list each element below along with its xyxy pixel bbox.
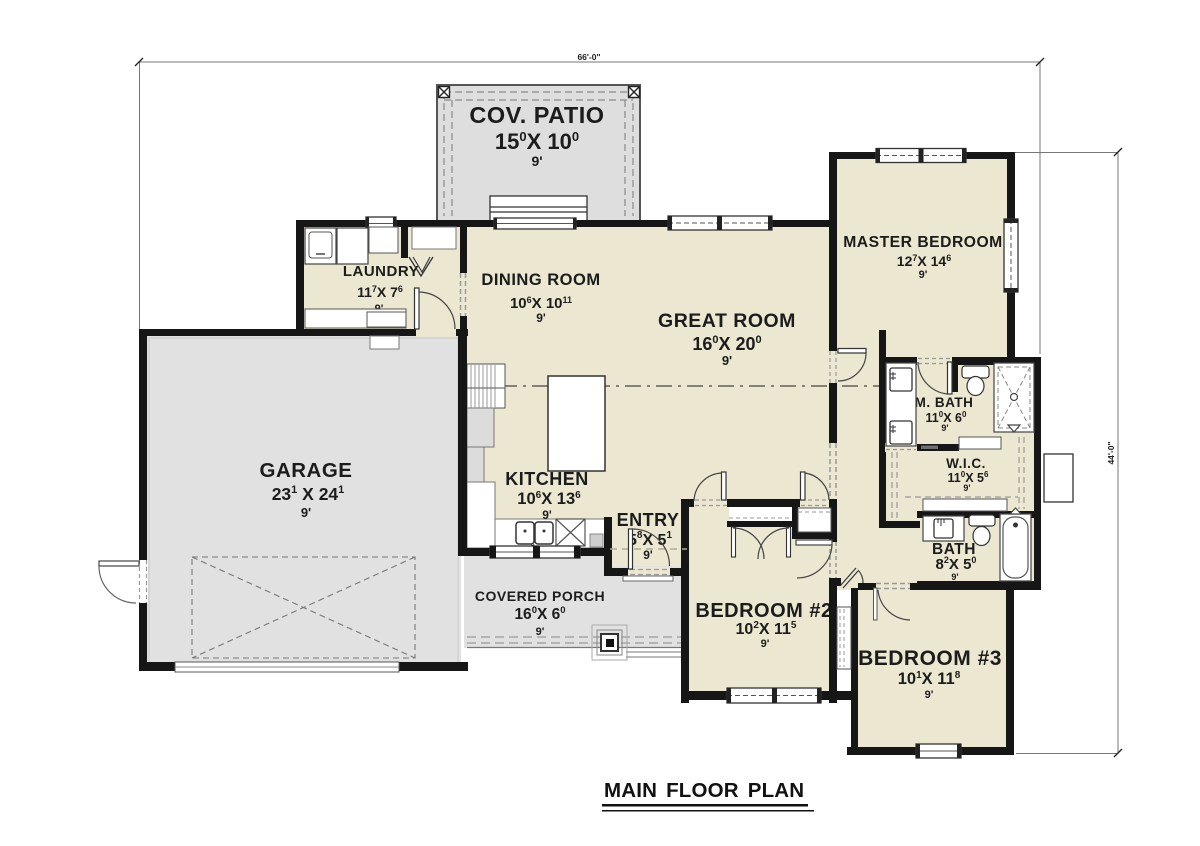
svg-text:102X 115: 102X 115 bbox=[736, 620, 797, 638]
svg-text:160X 60: 160X 60 bbox=[514, 605, 565, 623]
svg-text:9': 9' bbox=[531, 153, 542, 169]
svg-text:9': 9' bbox=[925, 689, 934, 701]
svg-text:9': 9' bbox=[951, 572, 958, 582]
svg-text:160X 200: 160X 200 bbox=[692, 334, 761, 354]
svg-text:MASTER BEDROOM: MASTER BEDROOM bbox=[843, 234, 1003, 251]
svg-text:106X 136: 106X 136 bbox=[517, 490, 581, 508]
svg-text:101X 118: 101X 118 bbox=[898, 670, 961, 688]
svg-text:ENTRY: ENTRY bbox=[617, 510, 680, 530]
svg-text:COV. PATIO: COV. PATIO bbox=[469, 102, 604, 128]
svg-text:GARAGE: GARAGE bbox=[260, 459, 353, 482]
svg-text:W.I.C.: W.I.C. bbox=[946, 456, 986, 471]
svg-text:9': 9' bbox=[536, 626, 545, 638]
svg-text:117X 76: 117X 76 bbox=[357, 284, 403, 300]
svg-text:BEDROOM #3: BEDROOM #3 bbox=[858, 647, 1002, 670]
svg-text:9': 9' bbox=[536, 311, 546, 325]
svg-text:9': 9' bbox=[301, 505, 311, 520]
svg-text:82X 50: 82X 50 bbox=[936, 555, 977, 573]
svg-text:9': 9' bbox=[542, 508, 552, 522]
svg-text:COVERED PORCH: COVERED PORCH bbox=[475, 588, 605, 604]
svg-text:LAUNDRY: LAUNDRY bbox=[343, 263, 419, 280]
svg-text:231 X 241: 231 X 241 bbox=[272, 484, 345, 504]
svg-text:150X 100: 150X 100 bbox=[495, 129, 579, 154]
svg-text:9': 9' bbox=[722, 353, 732, 368]
svg-text:KITCHEN: KITCHEN bbox=[505, 469, 589, 489]
svg-text:9': 9' bbox=[919, 269, 928, 281]
svg-text:9': 9' bbox=[963, 483, 970, 493]
svg-text:44'-0": 44'-0" bbox=[1106, 441, 1116, 464]
svg-text:BEDROOM #2: BEDROOM #2 bbox=[695, 600, 832, 622]
svg-text:9': 9' bbox=[941, 423, 948, 433]
svg-text:127X 146: 127X 146 bbox=[897, 253, 951, 269]
svg-text:9': 9' bbox=[761, 638, 770, 650]
svg-text:DINING ROOM: DINING ROOM bbox=[481, 271, 600, 289]
svg-text:66'-0": 66'-0" bbox=[577, 52, 600, 62]
svg-text:9': 9' bbox=[643, 548, 653, 562]
svg-text:GREAT ROOM: GREAT ROOM bbox=[658, 310, 796, 332]
svg-text:M. BATH: M. BATH bbox=[915, 395, 974, 410]
svg-text:MAIN FLOOR PLAN: MAIN FLOOR PLAN bbox=[604, 779, 804, 802]
